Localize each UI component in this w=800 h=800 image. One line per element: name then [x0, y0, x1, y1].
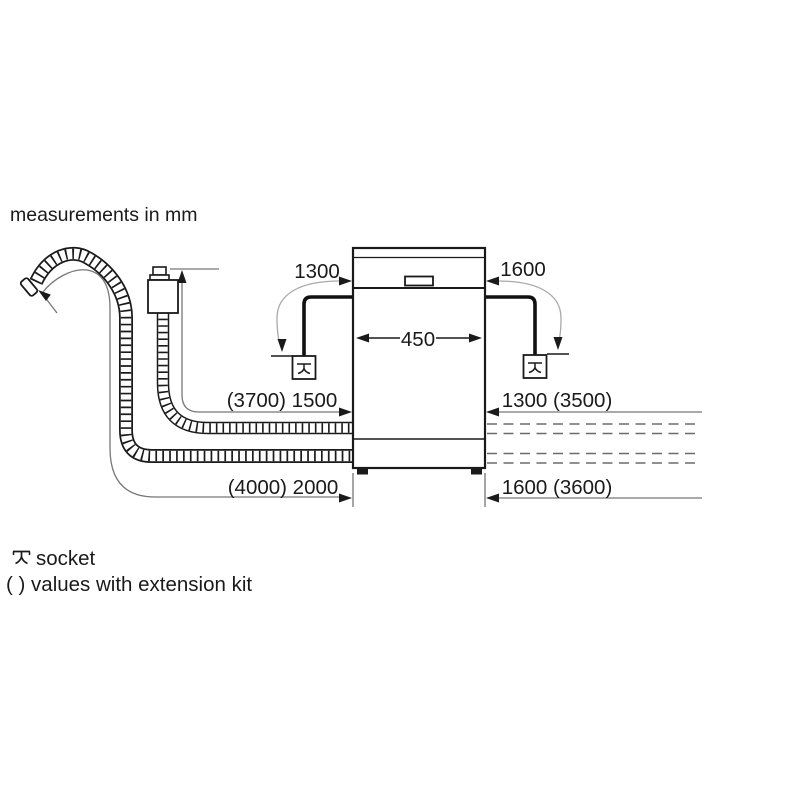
legend-extension-label: ( ) values with extension kit: [6, 573, 252, 596]
power-cord-right: [485, 297, 535, 355]
legend-socket-label: socket: [36, 547, 96, 570]
installation-diagram: measurements in mm 1300 1600 450 (3700) …: [0, 0, 800, 800]
socket-right: [524, 355, 547, 378]
power-cord-left: [304, 297, 353, 356]
legend-socket-icon: [13, 552, 30, 564]
title-measurements: measurements in mm: [10, 204, 197, 226]
extended-hoses-dashed: [487, 424, 700, 463]
dishwasher-foot-left: [357, 468, 368, 475]
dim-label-drain-right: 1600 (3600): [502, 476, 613, 499]
dim-label-supply-right: 1300 (3500): [502, 389, 613, 412]
dishwasher: [353, 248, 485, 475]
dim-label-drain-left: (4000) 2000: [228, 476, 339, 499]
legend: socket ( ) values with extension kit: [6, 547, 252, 596]
dim-label-socket-right: 1600: [500, 258, 546, 281]
dim-label-supply-left: (3700) 1500: [227, 389, 338, 412]
dim-arc-socket-right: [498, 281, 561, 346]
diagram-canvas: measurements in mm 1300 1600 450 (3700) …: [0, 0, 800, 800]
socket-left: [293, 356, 316, 379]
dim-arc-socket-left: [277, 281, 340, 348]
dishwasher-foot-right: [471, 468, 482, 475]
dishwasher-handle: [405, 277, 433, 286]
dim-label-socket-left: 1300: [294, 260, 340, 283]
dim-label-width: 450: [401, 328, 435, 351]
aquastop-valve: [148, 267, 178, 313]
